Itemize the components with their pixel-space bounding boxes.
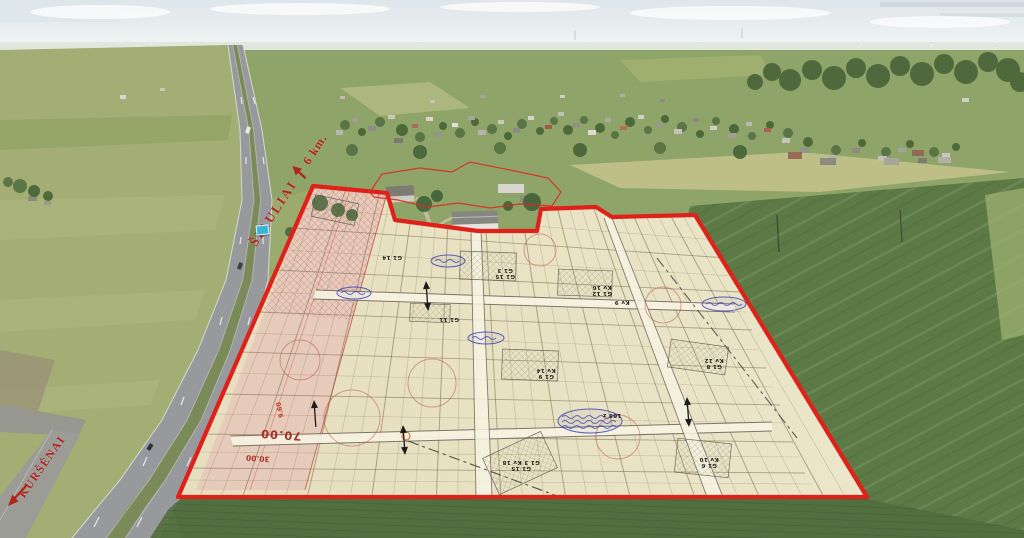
aerial-photo-scene	[0, 0, 1024, 538]
aerial-site-overview: ŠIAULIAI 6 km. KURŠĖNAI 70.00 30.00 9.60…	[0, 0, 1024, 538]
